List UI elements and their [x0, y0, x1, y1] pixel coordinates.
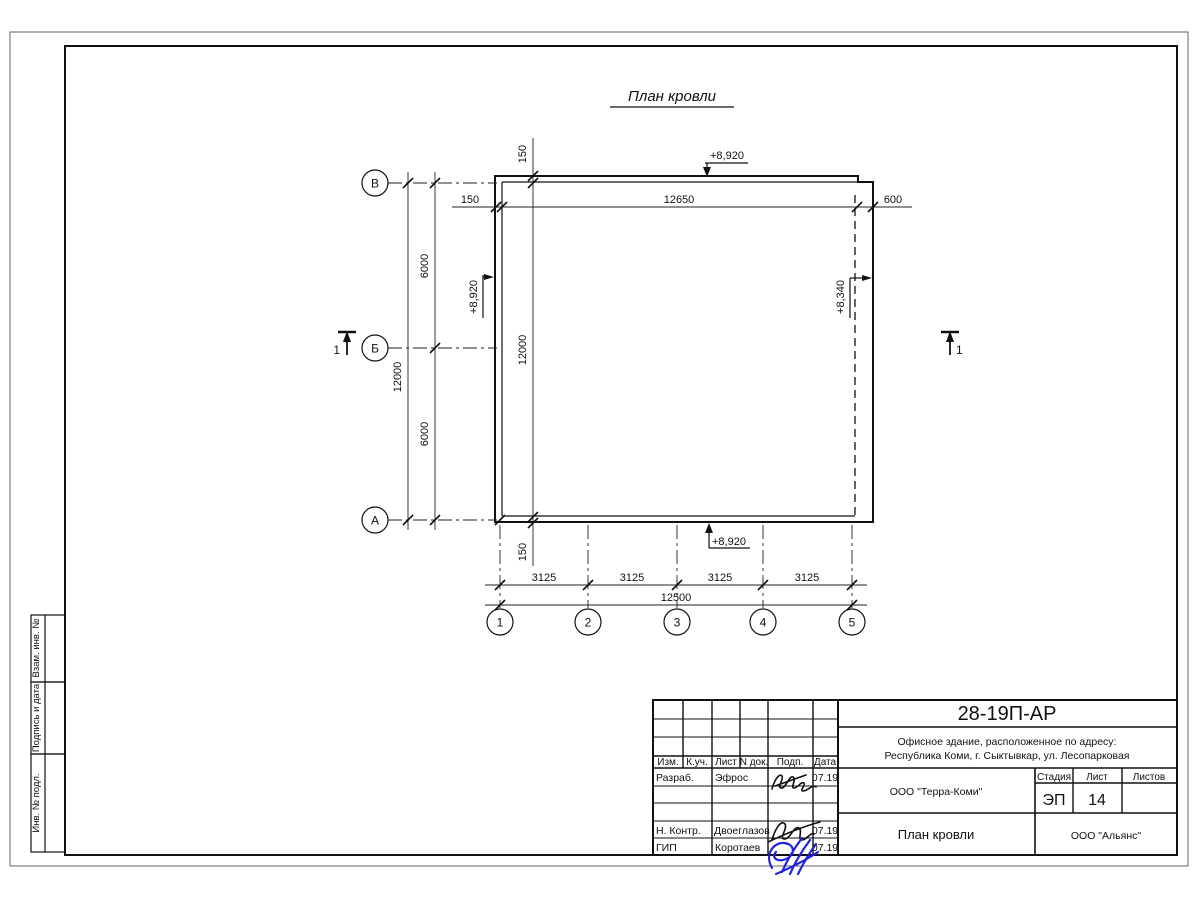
doc-code: 28-19П-АР	[958, 703, 1057, 725]
axis-label-2: 2	[585, 616, 592, 630]
tb-name-dvoeglazov: Двоеглазов	[714, 825, 770, 837]
side-label-inv: Инв. № подл.	[31, 773, 42, 832]
dim-inner-12000: 12000	[517, 335, 529, 366]
plan-title-group: План кровли	[610, 88, 734, 107]
elevation-right-value: +8,340	[835, 280, 847, 314]
axis-bubbles-left: В Б А	[362, 170, 388, 533]
sheet-label: Лист	[1086, 772, 1108, 783]
tb-col-list: Лист	[715, 757, 737, 768]
tb-role-gip: ГИП	[656, 842, 677, 854]
dim-inner-vertical: 150 12000 150	[517, 138, 538, 566]
elevation-right: +8,340	[835, 275, 872, 318]
dim-left: 6000 6000 12000	[392, 172, 440, 530]
tb-col-kuch: К.уч.	[686, 757, 708, 768]
sheet-value: 14	[1088, 792, 1106, 809]
section-mark-right: 1	[941, 331, 963, 357]
axis-label-b: Б	[371, 342, 379, 356]
dim-top-span: 12650	[664, 194, 695, 206]
roof-outer-edge	[495, 176, 873, 522]
stage-value: ЭП	[1043, 792, 1066, 809]
tb-col-data: Дата	[814, 757, 837, 768]
inner-border	[65, 46, 1177, 855]
side-label-vzam: Взам. инв. №	[31, 619, 42, 678]
axis-label-1: 1	[497, 616, 504, 630]
dim-left-12000: 12000	[392, 362, 404, 393]
dim-left-6000-lower: 6000	[419, 422, 431, 446]
axis-label-v: В	[371, 177, 379, 191]
signature-efros	[772, 775, 816, 791]
dim-bottom: 3125 3125 3125 3125 12500	[485, 515, 867, 610]
elevation-bottom: +8,920	[705, 523, 750, 548]
tb-sheet-title: План кровли	[898, 827, 975, 842]
org-right: ООО "Альянс"	[1071, 830, 1141, 842]
side-label-podpis: Подпись и дата	[31, 683, 42, 752]
axis-bubbles-bottom: 1 2 3 4 5	[487, 609, 865, 635]
dim-top-right-offset: 600	[884, 194, 902, 206]
dim-3125-3: 3125	[708, 572, 732, 584]
axis-lines	[388, 183, 852, 608]
elevation-top-value: +8,920	[710, 150, 744, 162]
elevation-left: +8,920	[468, 274, 494, 318]
dim-top: 150 12650 600	[452, 194, 912, 212]
dim-inner-bottom-150: 150	[517, 543, 529, 561]
axis-label-5: 5	[849, 616, 856, 630]
section-mark-left: 1	[333, 331, 356, 357]
title-block: 28-19П-АР Офисное здание, расположенное …	[653, 700, 1177, 874]
tb-name-korotaev: Коротаев	[715, 842, 761, 854]
tb-date-2: 07.19	[812, 825, 838, 837]
elevation-left-value: +8,920	[468, 280, 480, 314]
plan-title: План кровли	[628, 88, 717, 105]
section-right-label: 1	[956, 343, 963, 357]
tb-col-izm: Изм.	[657, 757, 678, 768]
axis-label-4: 4	[760, 616, 767, 630]
dim-3125-1: 3125	[532, 572, 556, 584]
tb-name-efros: Эфрос	[715, 772, 748, 784]
dim-3125-2: 3125	[620, 572, 644, 584]
tb-role-razrab: Разраб.	[656, 772, 694, 784]
axis-label-a: А	[371, 514, 379, 528]
dim-left-6000-upper: 6000	[419, 254, 431, 278]
tb-col-podp: Подп.	[777, 757, 804, 768]
dim-inner-top-150: 150	[517, 145, 529, 163]
tb-date-1: 07.19	[812, 772, 838, 784]
tb-col-ndok: N док.	[740, 757, 769, 768]
section-left-label: 1	[333, 343, 340, 357]
stage-label: Стадия	[1037, 772, 1071, 783]
org-middle: ООО "Терра-Коми"	[890, 786, 983, 798]
elevation-bottom-value: +8,920	[712, 536, 746, 548]
dim-12500: 12500	[661, 592, 692, 604]
side-label-boxes: Взам. инв. № Подпись и дата Инв. № подл.	[31, 615, 65, 852]
elevation-top: +8,920	[703, 150, 748, 177]
dim-3125-4: 3125	[795, 572, 819, 584]
roof-outline	[495, 176, 873, 522]
sheets-label: Листов	[1133, 772, 1166, 783]
tb-role-nkontr: Н. Контр.	[656, 825, 701, 837]
drawing-sheet: Взам. инв. № Подпись и дата Инв. № подл.…	[0, 0, 1200, 900]
object-address-line2: Республика Коми, г. Сыктывкар, ул. Лесоп…	[885, 750, 1130, 762]
axis-label-3: 3	[674, 616, 681, 630]
arrow-up-icon	[705, 523, 713, 533]
dim-top-left-offset: 150	[461, 194, 479, 206]
object-address-line1: Офисное здание, расположенное по адресу:	[898, 736, 1117, 748]
